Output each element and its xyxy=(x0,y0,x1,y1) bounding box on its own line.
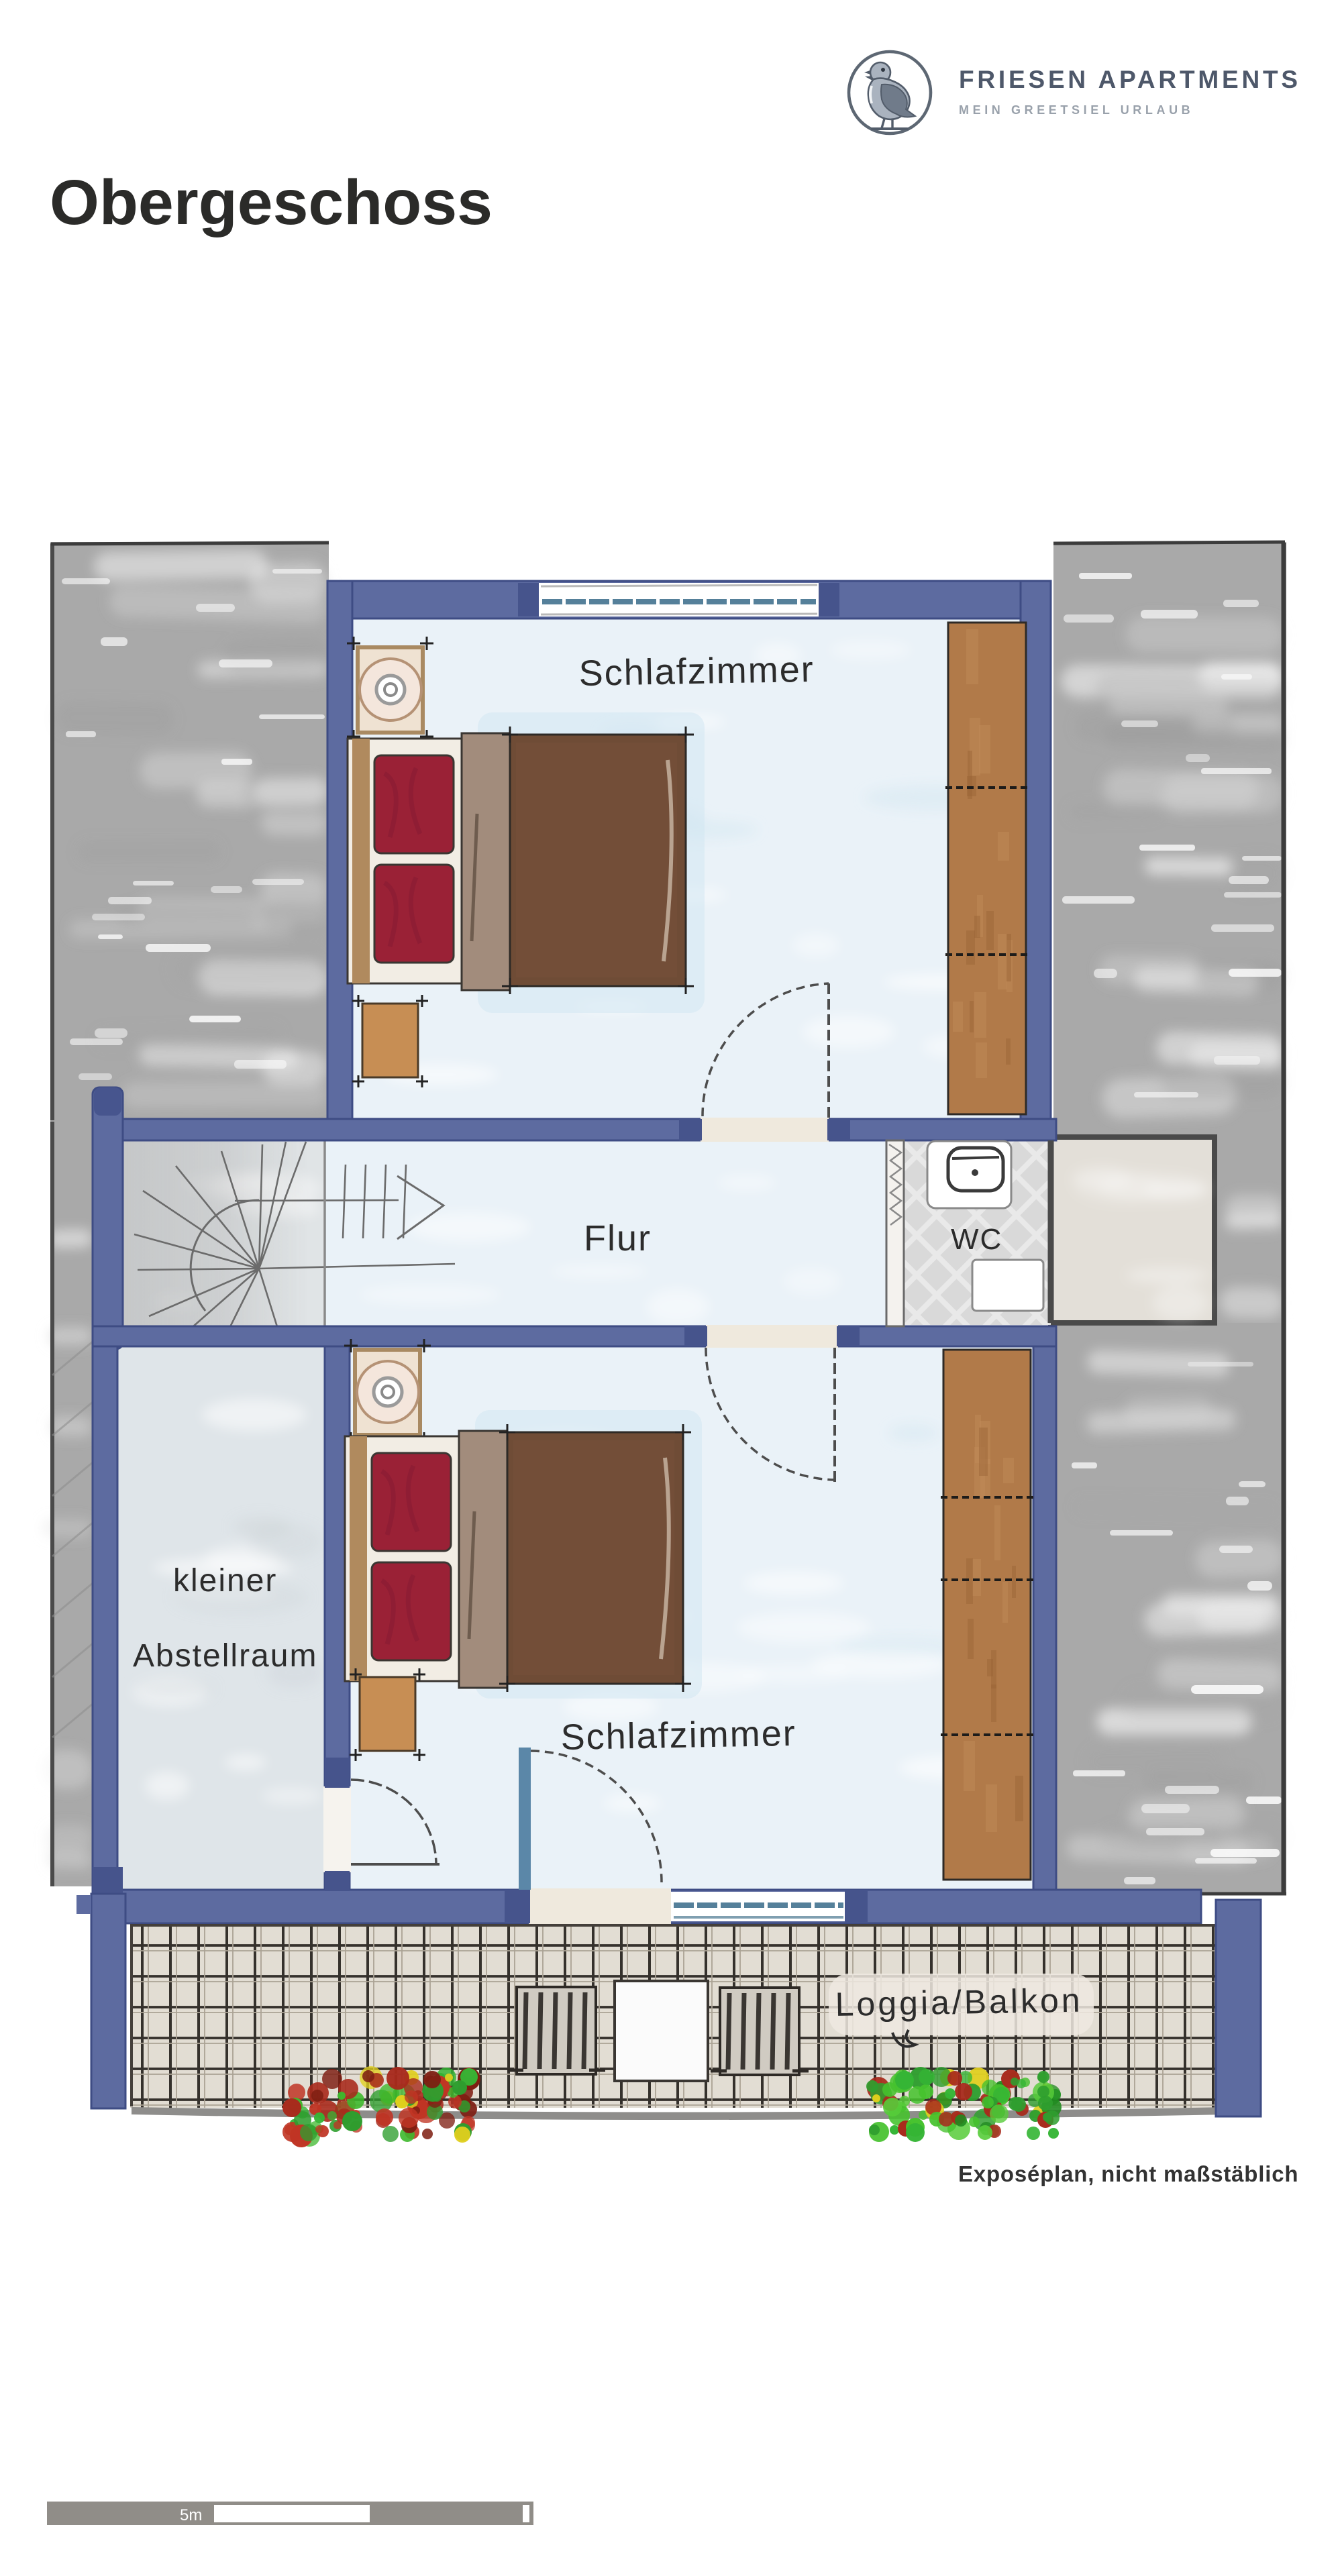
svg-text:kleiner: kleiner xyxy=(173,1563,277,1599)
svg-text:Abstellraum: Abstellraum xyxy=(133,1638,317,1674)
svg-text:Schlafzimmer: Schlafzimmer xyxy=(578,649,815,694)
svg-text:Exposéplan, nicht maßstäblich: Exposéplan, nicht maßstäblich xyxy=(958,2161,1298,2186)
svg-text:Schlafzimmer: Schlafzimmer xyxy=(560,1713,796,1758)
svg-text:WC: WC xyxy=(951,1223,1002,1256)
svg-text:Loggia/Balkon: Loggia/Balkon xyxy=(835,1982,1083,2023)
svg-text:Flur: Flur xyxy=(584,1218,652,1258)
svg-text:5m: 5m xyxy=(180,2506,202,2524)
